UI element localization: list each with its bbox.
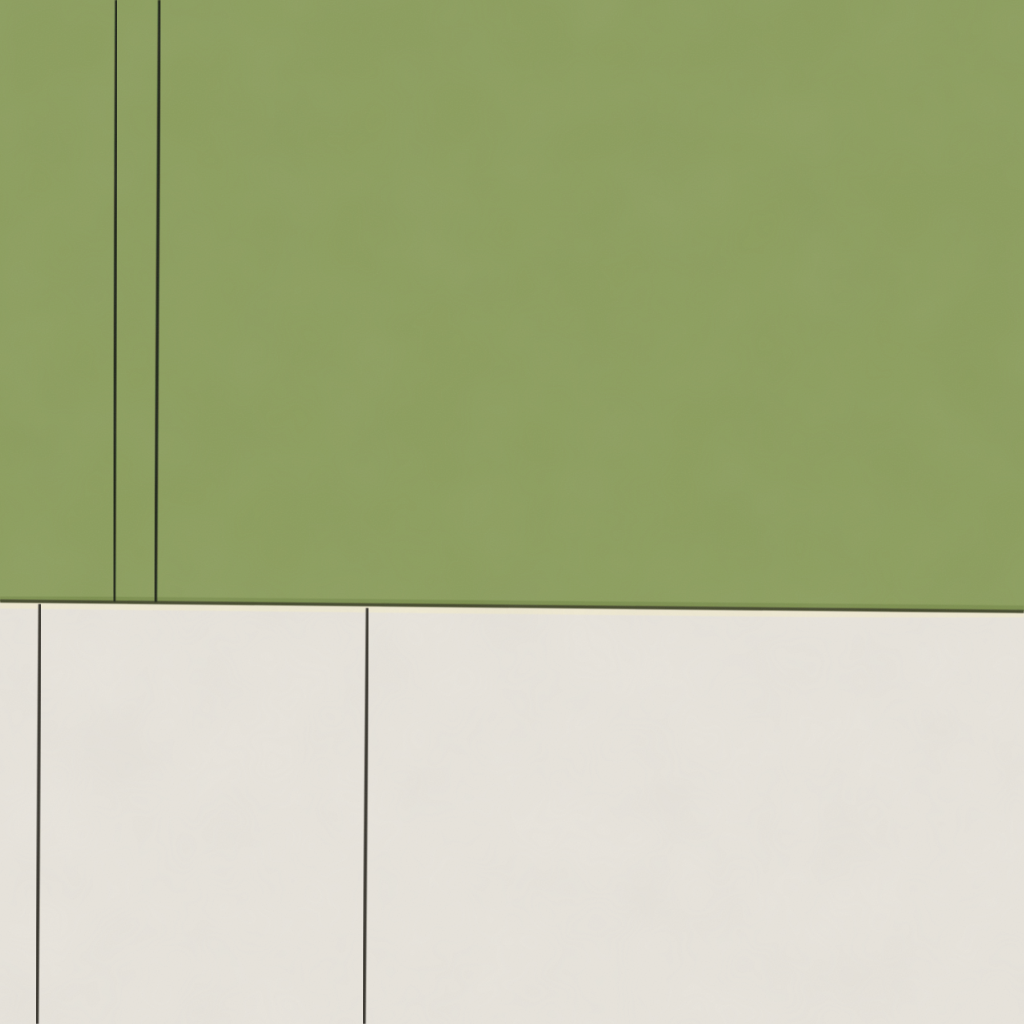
photo-canvas	[0, 0, 1024, 1024]
photo-paper-abstract	[0, 0, 1024, 1024]
paper-grain-overlay	[0, 0, 1024, 1024]
